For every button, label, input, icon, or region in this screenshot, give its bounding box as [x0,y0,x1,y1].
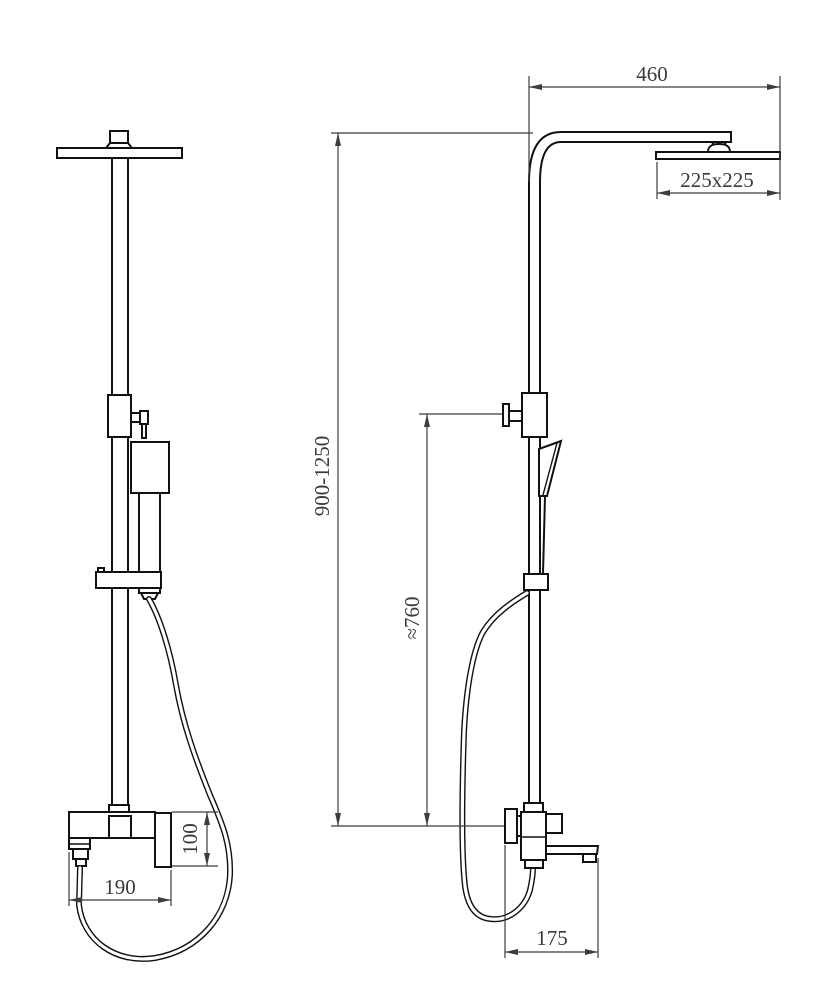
drawing-sheet: 100 190 [0,0,827,1000]
shower-head-front [57,131,182,158]
dim-head-size: 225x225 [657,162,780,199]
bracket-side [524,574,548,590]
technical-drawing-canvas: 100 190 [0,0,827,1000]
shower-hose-front [79,599,230,959]
dim-valve-body-height-label: 100 [178,823,202,855]
slider-side [503,393,547,437]
dim-height-range-label: 900-1250 [310,436,334,517]
bracket-front [96,568,161,588]
mixer-valve-front [69,805,171,867]
slider-front [108,395,148,438]
hand-shower-side [539,441,561,574]
shower-head-side [656,142,780,159]
riser-column-front [112,158,128,805]
dim-hose-outlet-height-label: ≈760 [400,596,424,639]
dim-head-size-label: 225x225 [680,168,754,192]
dim-valve-width-label: 190 [104,875,136,899]
mixer-valve-side [505,803,598,868]
front-view: 100 190 [57,131,230,959]
dim-height-range: 900-1250 [310,133,533,826]
dim-hose-outlet-height: ≈760 [400,414,502,826]
dim-spout-length-label: 175 [536,926,568,950]
shower-hose-side [462,593,533,919]
dim-valve-body-height: 100 [172,812,218,866]
side-view: 460 225x225 900-1250 ≈760 [310,62,780,958]
dim-arm-reach-label: 460 [636,62,668,86]
